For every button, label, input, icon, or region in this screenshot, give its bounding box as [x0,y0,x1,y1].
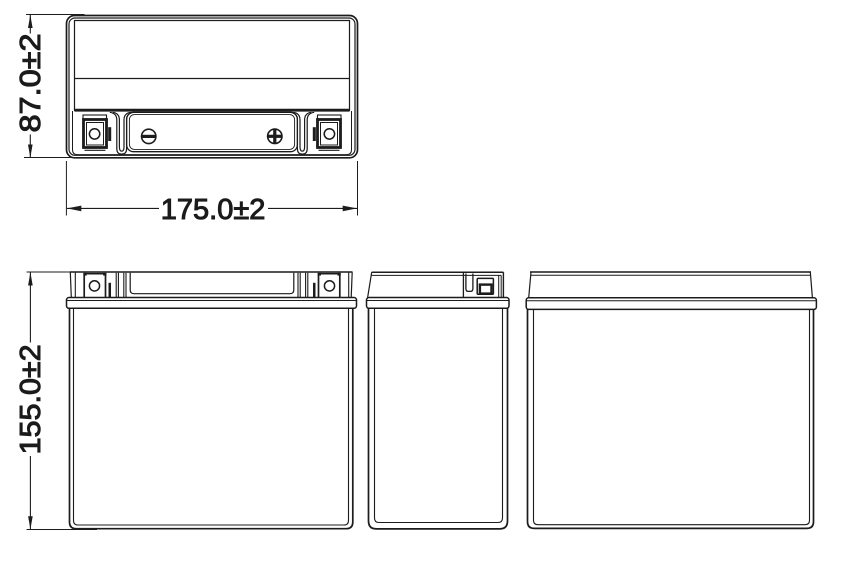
svg-text:155.0±2: 155.0±2 [15,344,47,454]
svg-text:87.0±2: 87.0±2 [15,33,47,132]
svg-text:175.0±2: 175.0±2 [161,194,266,226]
